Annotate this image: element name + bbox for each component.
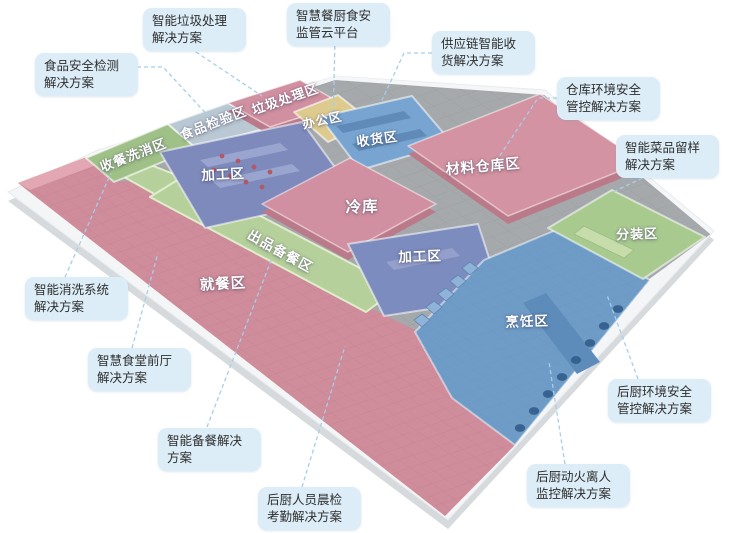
callout-smart-waste[interactable]: 智能垃圾处理解决方案 (143, 8, 246, 51)
callout-kitchen-env-control[interactable]: 后厨环境安全管控解决方案 (608, 379, 711, 422)
callout-smart-meal-prep[interactable]: 智能备餐解决方案 (158, 428, 261, 471)
callout-food-safety-testing[interactable]: 食品安全检测解决方案 (35, 53, 138, 96)
callout-smart-front-hall[interactable]: 智慧食堂前厅解决方案 (88, 348, 191, 391)
leader-line-waste (190, 48, 262, 96)
smart-canteen-floorplan: 收餐洗消区 食品检验区 垃圾处理区 办公区 收货区 材料仓库区 加工区 冷库 出… (0, 0, 745, 533)
callout-cloud-platform[interactable]: 智慧餐厨食安监管云平台 (287, 3, 390, 46)
callout-warehouse-env-control[interactable]: 仓库环境安全管控解决方案 (557, 77, 660, 120)
callout-staff-morning-check[interactable]: 后厨人员晨检考勤解决方案 (258, 487, 361, 530)
callout-supply-chain-receiving[interactable]: 供应链智能收货解决方案 (432, 31, 535, 74)
callout-smart-washing[interactable]: 智能消洗系统解决方案 (25, 277, 128, 320)
callout-dish-sample-retention[interactable]: 智能菜品留样解决方案 (616, 135, 719, 178)
callout-open-flame-monitor[interactable]: 后厨动火离人监控解决方案 (527, 464, 630, 507)
